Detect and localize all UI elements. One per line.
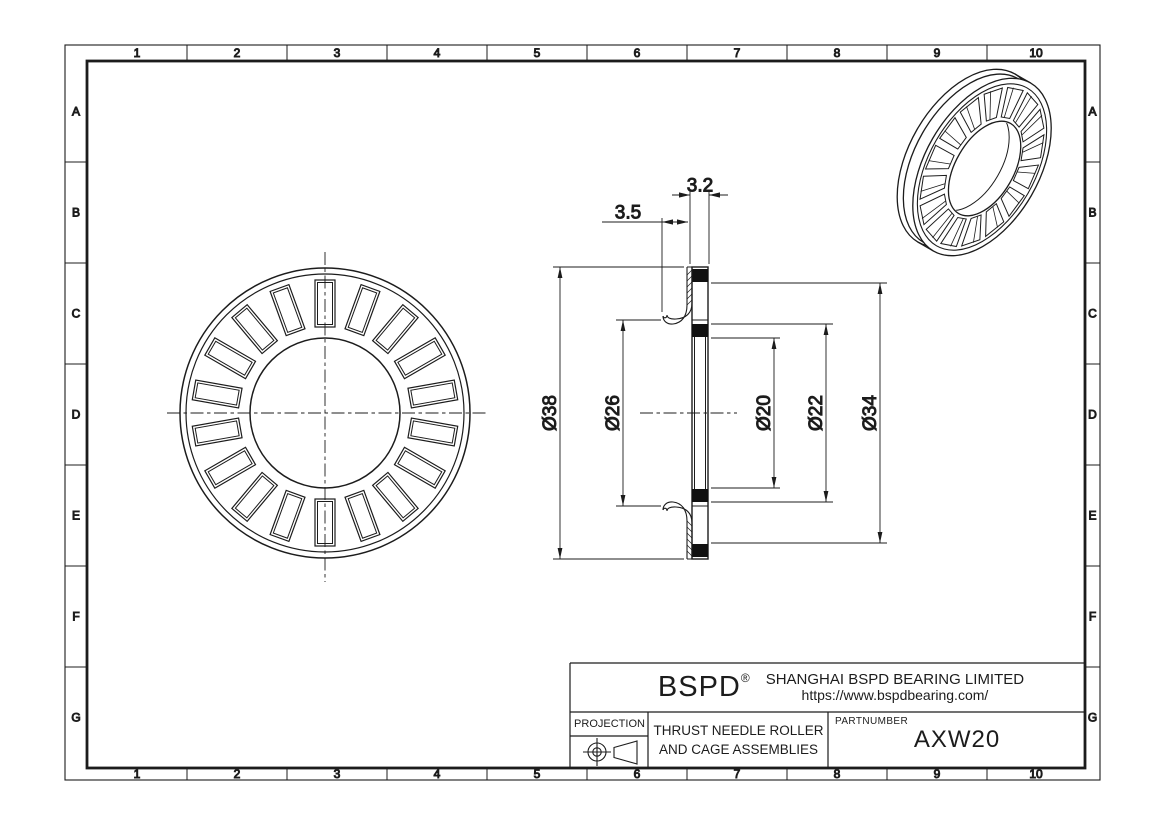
dimension-label: Ø34 [860,395,881,431]
grid-row-label: D [1088,408,1097,422]
dimension-label: 3.2 [687,176,713,197]
grid-row-label: F [72,610,79,624]
roller-pocket [408,380,458,408]
grid-column-label: 5 [534,46,541,60]
roller-pocket [205,338,256,379]
grid-column-label: 8 [834,767,841,781]
part-title-line2: AND CAGE ASSEMBLIES [659,740,818,759]
part-title: THRUST NEEDLE ROLLER AND CAGE ASSEMBLIES [649,712,828,768]
grid-row-label: A [1088,105,1096,119]
section-view [553,190,887,559]
dimension-label: Ø22 [806,395,827,431]
grid-column-label: 7 [734,46,741,60]
roller-pocket [373,472,419,521]
grid-column-label: 3 [334,46,341,60]
dimension-label: 3.5 [615,203,641,224]
roller-pocket [394,447,445,488]
grid-column-label: 4 [434,46,441,60]
grid-column-label: 8 [834,46,841,60]
grid-column-label: 3 [334,767,341,781]
dimension-label: Ø38 [540,395,561,431]
roller-pocket [270,490,305,541]
grid-row-label: G [71,711,80,725]
grid-column-label: 6 [634,767,641,781]
title-block-header: BSPD® SHANGHAI BSPD BEARING LIMITED http… [571,663,1085,712]
roller-pocket [192,380,242,408]
grid-column-label: 10 [1029,46,1043,60]
roller-pocket [232,305,278,354]
roller-pocket [205,447,256,488]
partnumber-value: AXW20 [829,720,1085,760]
registered-mark: ® [741,671,750,685]
roller-pocket [345,285,380,336]
grid-row-label: B [72,206,80,220]
grid-column-label: 10 [1029,767,1043,781]
company-name: SHANGHAI BSPD BEARING LIMITED [766,672,1024,687]
dimension-label: Ø20 [754,395,775,431]
grid-column-label: 4 [434,767,441,781]
roller-pocket [394,338,445,379]
company-website: https://www.bspdbearing.com/ [802,688,989,703]
projection-label: PROJECTION [571,713,648,735]
grid-row-label: G [1088,711,1097,725]
roller-pocket [408,418,458,446]
grid-row-label: F [1089,610,1096,624]
grid-column-label: 5 [534,767,541,781]
grid-column-label: 2 [234,46,241,60]
grid-column-label: 9 [934,767,941,781]
dimension-label: Ø26 [603,395,624,431]
grid-row-label: C [72,307,81,321]
grid-column-label: 6 [634,46,641,60]
grid-row-label: E [1088,509,1096,523]
grid-row-label: E [72,509,80,523]
front-view [167,252,489,582]
grid-row-label: B [1088,206,1096,220]
roller-pocket [270,285,305,336]
roller-pocket [345,490,380,541]
grid-column-label: 9 [934,46,941,60]
drawing-sheet: 1122334455667788991010AABBCCDDEEFFGG Ø38… [0,0,1170,827]
part-title-line1: THRUST NEEDLE ROLLER [653,721,823,740]
roller-pocket [373,305,419,354]
grid-column-label: 1 [134,767,141,781]
projection-symbol [583,738,637,766]
grid-column-label: 2 [234,767,241,781]
bspd-logo: BSPD® [658,671,750,704]
front-centerlines [167,252,489,582]
dimension-labels: Ø38Ø26Ø20Ø22Ø343.53.2 [540,176,881,431]
iso-view [869,45,1080,279]
grid-row-label: C [1088,307,1097,321]
dimension-width-arrows [662,192,720,224]
grid-column-label: 7 [734,767,741,781]
roller-pocket [232,472,278,521]
grid-column-label: 1 [134,46,141,60]
grid-row-label: D [72,408,81,422]
roller-pocket [192,418,242,446]
grid-row-label: A [72,105,80,119]
